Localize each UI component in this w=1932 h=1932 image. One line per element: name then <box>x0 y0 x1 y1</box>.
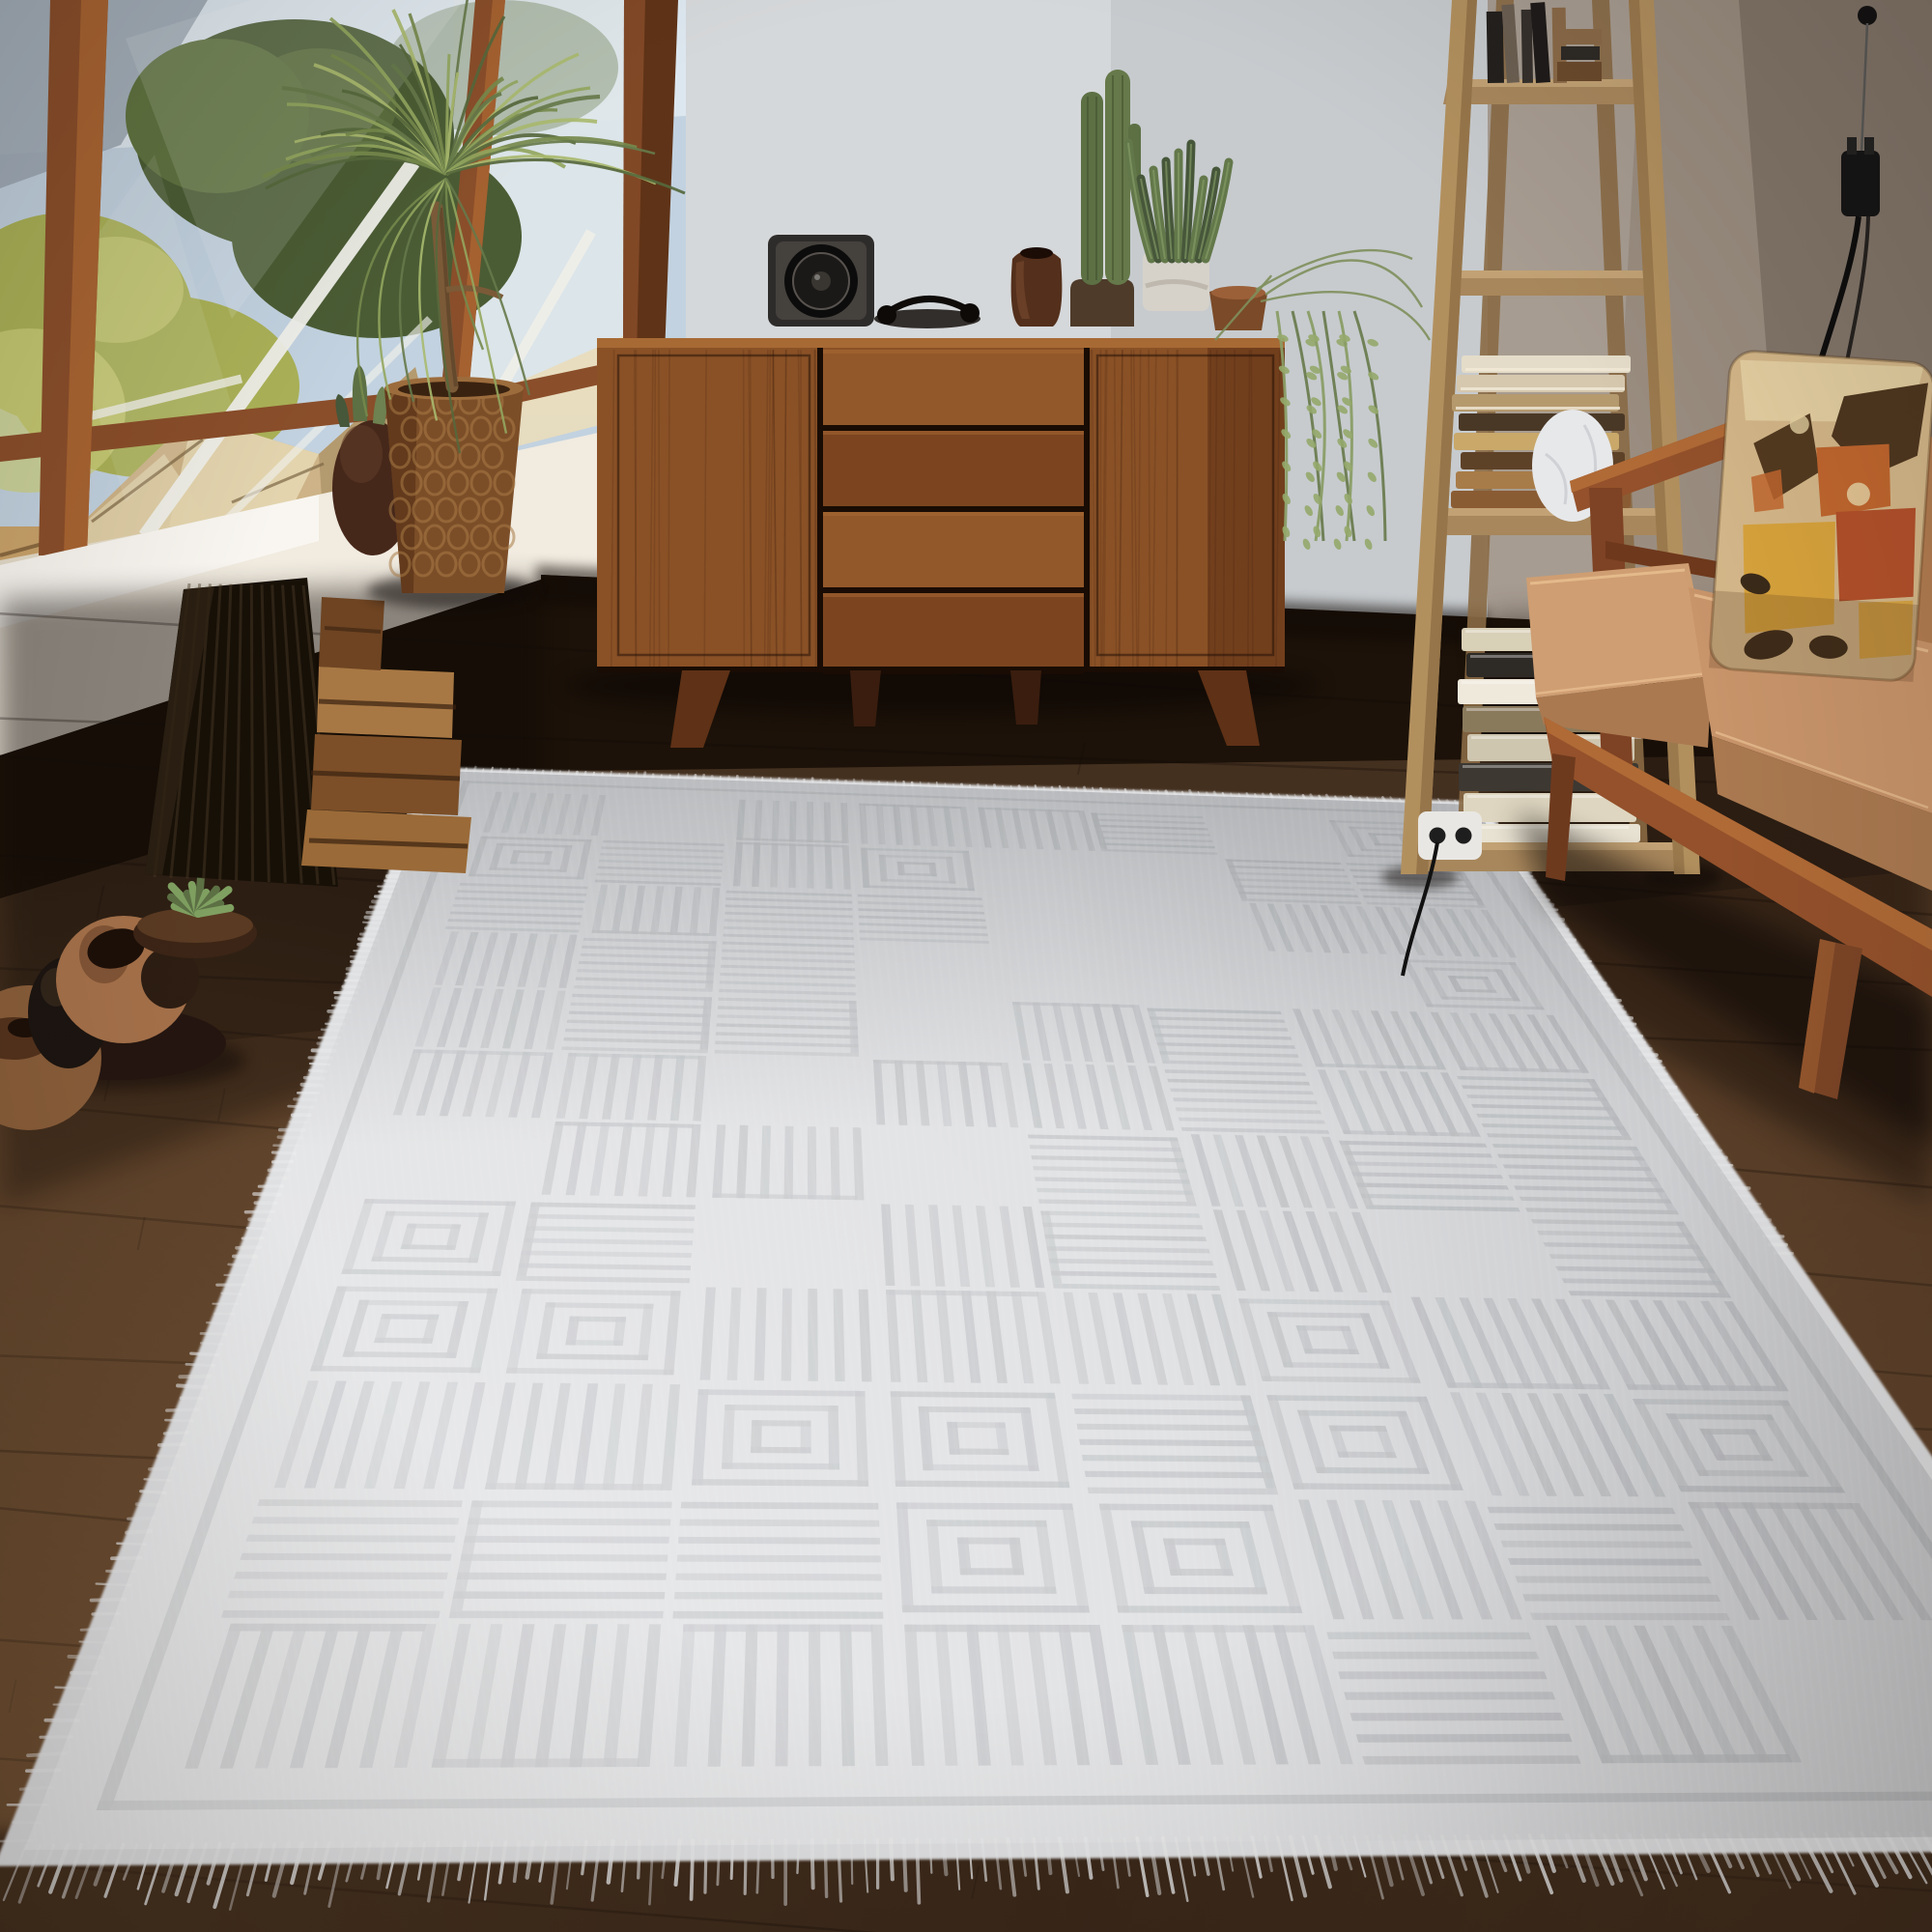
wood-stack <box>301 597 471 873</box>
brown-vase <box>1011 247 1063 327</box>
sideboard <box>565 338 1319 748</box>
throw-pillow <box>1709 350 1932 682</box>
cube-speaker <box>768 235 874 327</box>
succulent-bowl <box>133 877 257 958</box>
living-room-scene <box>0 0 1932 1932</box>
cactus-plant <box>1070 70 1141 327</box>
headphones <box>874 298 980 328</box>
furniture-and-decor <box>0 0 1932 1932</box>
